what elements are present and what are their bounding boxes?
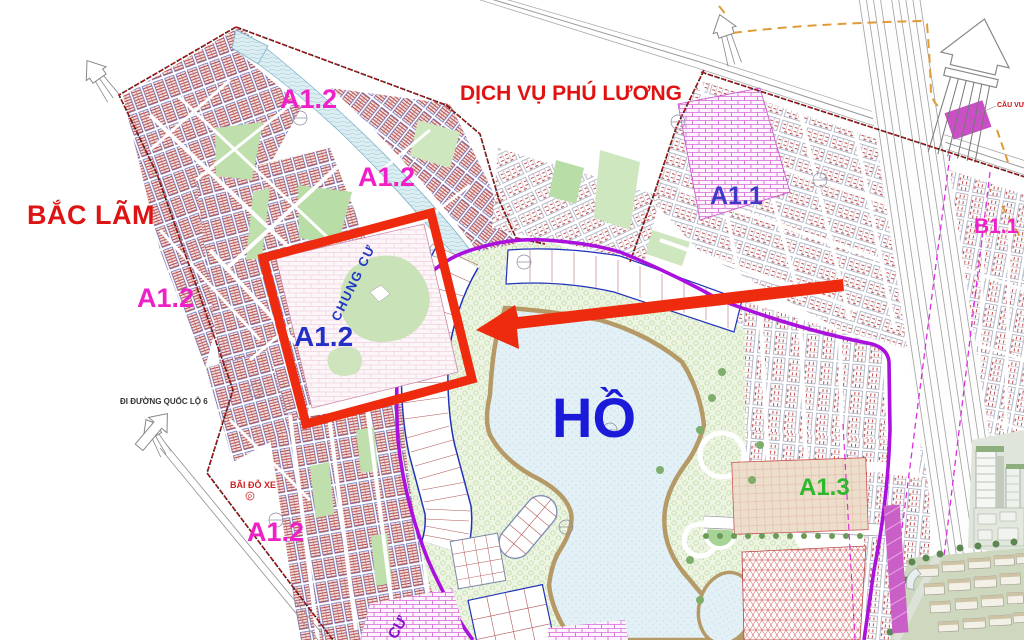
svg-text:B1.1: B1.1 [974, 215, 1019, 238]
svg-text:ĐI ĐƯỜNG QUỐC LỘ 6: ĐI ĐƯỜNG QUỐC LỘ 6 [120, 396, 208, 406]
svg-text:A1.2: A1.2 [247, 517, 304, 547]
svg-text:BÃI ĐỖ XE: BÃI ĐỖ XE [230, 479, 276, 490]
svg-text:A1.1: A1.1 [710, 182, 763, 210]
svg-text:HỒ: HỒ [552, 386, 636, 449]
svg-text:A1.2: A1.2 [137, 283, 194, 313]
svg-text:A1.2: A1.2 [294, 321, 353, 352]
svg-text:BẮC LÃM: BẮC LÃM [27, 199, 155, 230]
svg-text:A1.2: A1.2 [358, 162, 415, 192]
svg-text:P: P [248, 495, 252, 501]
svg-text:DỊCH VỤ PHÚ LƯƠNG: DỊCH VỤ PHÚ LƯƠNG [460, 81, 682, 105]
svg-text:A1.3: A1.3 [799, 474, 850, 501]
svg-text:A1.2: A1.2 [280, 84, 337, 114]
